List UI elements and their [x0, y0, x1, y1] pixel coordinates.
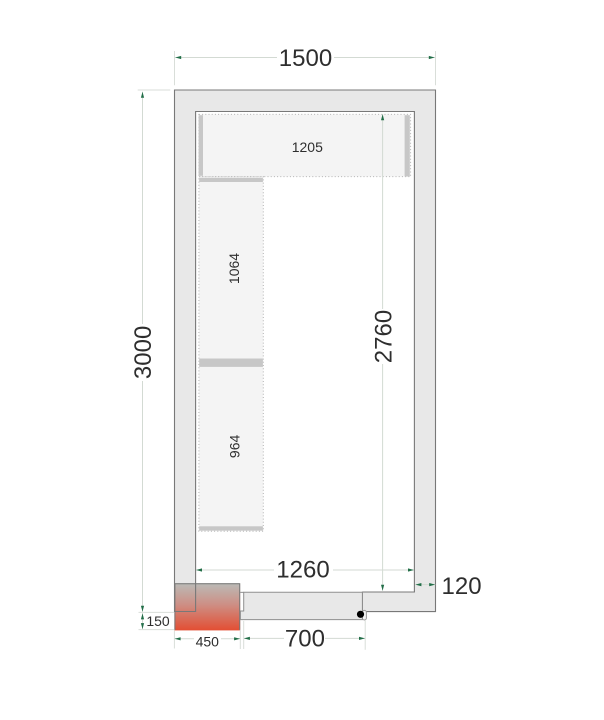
svg-text:1064: 1064 — [226, 253, 242, 284]
svg-text:2760: 2760 — [370, 310, 397, 363]
svg-text:700: 700 — [285, 626, 325, 653]
svg-text:3000: 3000 — [130, 326, 157, 379]
svg-text:964: 964 — [226, 435, 242, 459]
svg-text:1205: 1205 — [292, 139, 323, 155]
svg-text:1500: 1500 — [279, 45, 332, 72]
svg-text:450: 450 — [196, 634, 220, 650]
svg-text:1260: 1260 — [276, 557, 329, 584]
svg-text:120: 120 — [442, 573, 482, 600]
svg-text:150: 150 — [146, 613, 170, 629]
